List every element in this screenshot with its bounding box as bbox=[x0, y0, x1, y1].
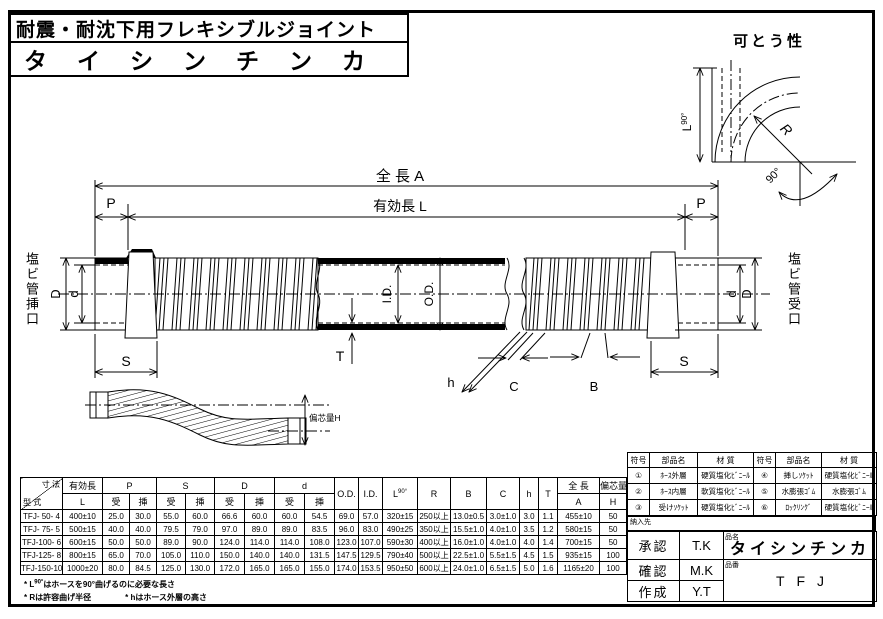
table-cell: 4.0 bbox=[520, 536, 539, 549]
symbol-header: 符号 bbox=[754, 453, 776, 468]
approval-table: 承認 T.K 品名タイシンチンカ 確認 M.K 品番TFJ 作成 Y.T bbox=[627, 531, 877, 602]
table-cell: 6.5±1.5 bbox=[487, 562, 520, 575]
delivery-destination-field: 納入先 bbox=[627, 516, 876, 531]
r-header: R bbox=[418, 478, 451, 510]
approval-initials: T.K bbox=[680, 532, 724, 560]
receive-subheader: 受 bbox=[215, 494, 245, 510]
table-cell: ④ bbox=[754, 468, 776, 484]
table-cell: 97.0 bbox=[215, 523, 245, 536]
table-cell: 1165±20 bbox=[558, 562, 600, 575]
author-label: 作成 bbox=[628, 581, 680, 602]
table-cell: 54.5 bbox=[305, 510, 335, 523]
table-cell: 350以上 bbox=[418, 523, 451, 536]
table-cell: 軟質塩化ﾋﾞﾆｰﾙ bbox=[698, 484, 754, 500]
table-cell: 50 bbox=[600, 510, 627, 523]
part-name-header: 部品名 bbox=[650, 453, 698, 468]
table-cell: 25.0 bbox=[103, 510, 130, 523]
table-cell: 挿しｿｹｯﾄ bbox=[776, 468, 822, 484]
table-cell: 5.5±1.5 bbox=[487, 549, 520, 562]
D-header: D bbox=[215, 478, 275, 494]
part-name-header: 部品名 bbox=[776, 453, 822, 468]
table-cell: 129.5 bbox=[359, 549, 383, 562]
table-cell: 140.0 bbox=[275, 549, 305, 562]
table-cell: 13.0±0.5 bbox=[451, 510, 487, 523]
table-cell: 140.0 bbox=[245, 549, 275, 562]
table-cell: 83.5 bbox=[305, 523, 335, 536]
table-cell: 790±40 bbox=[383, 549, 418, 562]
material-header: 材 質 bbox=[698, 453, 754, 468]
table-cell: 89.0 bbox=[245, 523, 275, 536]
table-cell: 84.5 bbox=[130, 562, 157, 575]
drawing-sheet: 耐震・耐沈下用フレキシブルジョイント タイシンチンカ 可とう性 塩ビ管挿口 塩ビ… bbox=[0, 0, 883, 619]
product-code-cell: 品番TFJ bbox=[724, 560, 877, 602]
table-cell: 174.0 bbox=[335, 562, 359, 575]
table-cell: 3.0±1.0 bbox=[487, 510, 520, 523]
product-name-value: タイシンチンカ bbox=[724, 535, 876, 559]
table-row: TFJ- 75- 5500±1540.040.079.579.097.089.0… bbox=[21, 523, 627, 536]
table-cell: ③ bbox=[628, 500, 650, 516]
table-cell: 100 bbox=[600, 549, 627, 562]
od-header: O.D. bbox=[335, 478, 359, 510]
table-cell: 172.0 bbox=[215, 562, 245, 575]
table-cell: 硬質塩化ﾋﾞﾆｰﾙ bbox=[698, 468, 754, 484]
table-cell: 107.0 bbox=[359, 536, 383, 549]
insert-subheader: 挿 bbox=[186, 494, 215, 510]
l90-header: L90° bbox=[383, 478, 418, 510]
table-cell: 3.0 bbox=[520, 510, 539, 523]
size-model-header: 寸 法型 式 bbox=[21, 478, 63, 510]
table-cell: 114.0 bbox=[245, 536, 275, 549]
product-name-cell: 品名タイシンチンカ bbox=[724, 532, 877, 560]
id-header: I.D. bbox=[359, 478, 383, 510]
table-cell: 水膨張ｺﾞﾑ bbox=[822, 484, 877, 500]
table-cell: 50 bbox=[600, 536, 627, 549]
table-cell: 硬質塩化ﾋﾞﾆｰﾙ bbox=[698, 500, 754, 516]
material-header: 材 質 bbox=[822, 453, 877, 468]
table-cell: 89.0 bbox=[275, 523, 305, 536]
spec-table: 寸 法型 式 有効長 P S D d O.D. I.D. L90° R B C … bbox=[20, 477, 627, 575]
table-cell: 320±15 bbox=[383, 510, 418, 523]
table-cell: 硬質塩化ﾋﾞﾆｰﾙ bbox=[822, 500, 877, 516]
table-cell: TFJ- 75- 5 bbox=[21, 523, 63, 536]
table-cell: 1.4 bbox=[539, 536, 558, 549]
table-cell: 250以上 bbox=[418, 510, 451, 523]
table-cell: 65.0 bbox=[103, 549, 130, 562]
b-header: B bbox=[451, 478, 487, 510]
table-cell: 600±15 bbox=[63, 536, 103, 549]
table-cell: 60.0 bbox=[186, 510, 215, 523]
total-length-symbol: A bbox=[558, 494, 600, 510]
left-port-label: 塩ビ管挿口 bbox=[22, 252, 41, 348]
table-cell: 108.0 bbox=[305, 536, 335, 549]
table-cell: 590±30 bbox=[383, 536, 418, 549]
right-port-label: 塩ビ管受口 bbox=[784, 252, 803, 348]
table-cell: 80.0 bbox=[103, 562, 130, 575]
table-cell: 66.6 bbox=[215, 510, 245, 523]
table-cell: 96.0 bbox=[335, 523, 359, 536]
table-cell: 4.0±1.0 bbox=[487, 523, 520, 536]
symbol-header: 符号 bbox=[628, 453, 650, 468]
t-header: T bbox=[539, 478, 558, 510]
insert-subheader: 挿 bbox=[130, 494, 157, 510]
c-header: C bbox=[487, 478, 520, 510]
table-cell: 500±15 bbox=[63, 523, 103, 536]
insert-subheader: 挿 bbox=[305, 494, 335, 510]
product-name-label: 品名 bbox=[725, 532, 739, 542]
table-cell: 500以上 bbox=[418, 549, 451, 562]
table-cell: ② bbox=[628, 484, 650, 500]
table-cell: 40.0 bbox=[130, 523, 157, 536]
table-cell: 4.5 bbox=[520, 549, 539, 562]
table-cell: 70.0 bbox=[130, 549, 157, 562]
table-cell: 1000±20 bbox=[63, 562, 103, 575]
table-cell: 935±15 bbox=[558, 549, 600, 562]
table-cell: 1.5 bbox=[539, 549, 558, 562]
table-cell: TFJ-150-10 bbox=[21, 562, 63, 575]
table-cell: 3.5 bbox=[520, 523, 539, 536]
table-cell: ﾛｯｸﾘﾝｸﾞ bbox=[776, 500, 822, 516]
table-row: ①ﾎｰｽ外層硬質塩化ﾋﾞﾆｰﾙ④挿しｿｹｯﾄ硬質塩化ﾋﾞﾆｰﾙ bbox=[628, 468, 877, 484]
check-initials: M.K bbox=[680, 560, 724, 581]
table-cell: 24.0±1.0 bbox=[451, 562, 487, 575]
table-row: ③受けｿｹｯﾄ硬質塩化ﾋﾞﾆｰﾙ⑥ﾛｯｸﾘﾝｸﾞ硬質塩化ﾋﾞﾆｰﾙ bbox=[628, 500, 877, 516]
table-cell: 22.5±1.0 bbox=[451, 549, 487, 562]
table-row: TFJ- 50- 4400±1025.030.055.060.066.660.0… bbox=[21, 510, 627, 523]
table-cell: 131.5 bbox=[305, 549, 335, 562]
total-length-header: 全 長 bbox=[558, 478, 600, 494]
table-cell: ⑥ bbox=[754, 500, 776, 516]
table-cell: 580±15 bbox=[558, 523, 600, 536]
insert-subheader: 挿 bbox=[245, 494, 275, 510]
table-cell: 30.0 bbox=[130, 510, 157, 523]
author-initials: Y.T bbox=[680, 581, 724, 602]
eccentricity-symbol: H bbox=[600, 494, 627, 510]
s-header: S bbox=[157, 478, 215, 494]
receive-subheader: 受 bbox=[103, 494, 130, 510]
table-cell: 125.0 bbox=[157, 562, 186, 575]
table-cell: 4.0±1.0 bbox=[487, 536, 520, 549]
table-cell: 600以上 bbox=[418, 562, 451, 575]
table-cell: 50 bbox=[600, 523, 627, 536]
table-cell: 受けｿｹｯﾄ bbox=[650, 500, 698, 516]
table-cell: 950±50 bbox=[383, 562, 418, 575]
h-header: h bbox=[520, 478, 539, 510]
table-cell: 800±15 bbox=[63, 549, 103, 562]
table-cell: ⑤ bbox=[754, 484, 776, 500]
table-cell: TFJ-100- 6 bbox=[21, 536, 63, 549]
table-cell: 83.0 bbox=[359, 523, 383, 536]
table-cell: 400±10 bbox=[63, 510, 103, 523]
table-cell: 155.0 bbox=[305, 562, 335, 575]
check-label: 確認 bbox=[628, 560, 680, 581]
table-row: TFJ-150-101000±2080.084.5125.0130.0172.0… bbox=[21, 562, 627, 575]
table-cell: 16.0±1.0 bbox=[451, 536, 487, 549]
table-cell: 123.0 bbox=[335, 536, 359, 549]
table-cell: 5.0 bbox=[520, 562, 539, 575]
d-header: d bbox=[275, 478, 335, 494]
table-cell: 1.6 bbox=[539, 562, 558, 575]
note-l90: * L90°はホースを90°曲げるのに必要な長さ bbox=[24, 579, 175, 590]
table-cell: TFJ- 50- 4 bbox=[21, 510, 63, 523]
table-row: ②ﾎｰｽ内層軟質塩化ﾋﾞﾆｰﾙ⑤水膨張ｺﾞﾑ水膨張ｺﾞﾑ bbox=[628, 484, 877, 500]
table-cell: 490±25 bbox=[383, 523, 418, 536]
product-code-value: TFJ bbox=[724, 573, 876, 589]
table-cell: TFJ-125- 8 bbox=[21, 549, 63, 562]
table-cell: 165.0 bbox=[275, 562, 305, 575]
eccentricity-header: 偏芯量 bbox=[600, 478, 627, 494]
table-cell: 400以上 bbox=[418, 536, 451, 549]
table-cell: 114.0 bbox=[275, 536, 305, 549]
table-cell: 124.0 bbox=[215, 536, 245, 549]
table-cell: 水膨張ｺﾞﾑ bbox=[776, 484, 822, 500]
flexibility-label: 可とう性 bbox=[733, 30, 805, 51]
table-cell: 40.0 bbox=[103, 523, 130, 536]
table-cell: 55.0 bbox=[157, 510, 186, 523]
table-cell: 69.0 bbox=[335, 510, 359, 523]
table-cell: 硬質塩化ﾋﾞﾆｰﾙ bbox=[822, 468, 877, 484]
table-cell: 60.0 bbox=[245, 510, 275, 523]
table-cell: 110.0 bbox=[186, 549, 215, 562]
table-cell: 60.0 bbox=[275, 510, 305, 523]
p-header: P bbox=[103, 478, 157, 494]
table-cell: 79.5 bbox=[157, 523, 186, 536]
receive-subheader: 受 bbox=[275, 494, 305, 510]
table-cell: 130.0 bbox=[186, 562, 215, 575]
table-cell: 147.5 bbox=[335, 549, 359, 562]
table-cell: 455±10 bbox=[558, 510, 600, 523]
table-cell: 90.0 bbox=[186, 536, 215, 549]
table-cell: ﾎｰｽ外層 bbox=[650, 468, 698, 484]
approval-label: 承認 bbox=[628, 532, 680, 560]
parts-table: 符号 部品名 材 質 符号 部品名 材 質 ①ﾎｰｽ外層硬質塩化ﾋﾞﾆｰﾙ④挿し… bbox=[627, 452, 877, 516]
table-cell: 165.0 bbox=[245, 562, 275, 575]
receive-subheader: 受 bbox=[157, 494, 186, 510]
table-cell: 79.0 bbox=[186, 523, 215, 536]
note-r-h: * Rは許容曲げ半径* hはホース外層の高さ bbox=[24, 592, 207, 603]
effective-length-header: 有効長 bbox=[63, 478, 103, 494]
table-cell: 57.0 bbox=[359, 510, 383, 523]
table-cell: 50.0 bbox=[130, 536, 157, 549]
table-cell: 1.1 bbox=[539, 510, 558, 523]
product-name-title: タイシンチンカ bbox=[8, 43, 409, 77]
product-code-label: 品番 bbox=[725, 560, 739, 570]
table-cell: 700±15 bbox=[558, 536, 600, 549]
effective-length-symbol: L bbox=[63, 494, 103, 510]
table-cell: 153.5 bbox=[359, 562, 383, 575]
table-cell: 1.2 bbox=[539, 523, 558, 536]
table-row: TFJ-100- 6600±1550.050.089.090.0124.0114… bbox=[21, 536, 627, 549]
table-row: TFJ-125- 8800±1565.070.0105.0110.0150.01… bbox=[21, 549, 627, 562]
table-cell: 100 bbox=[600, 562, 627, 575]
table-cell: ① bbox=[628, 468, 650, 484]
table-cell: ﾎｰｽ内層 bbox=[650, 484, 698, 500]
table-cell: 89.0 bbox=[157, 536, 186, 549]
sheet-title: 耐震・耐沈下用フレキシブルジョイント bbox=[8, 13, 409, 43]
table-cell: 150.0 bbox=[215, 549, 245, 562]
table-cell: 105.0 bbox=[157, 549, 186, 562]
table-cell: 50.0 bbox=[103, 536, 130, 549]
table-cell: 15.5±1.0 bbox=[451, 523, 487, 536]
